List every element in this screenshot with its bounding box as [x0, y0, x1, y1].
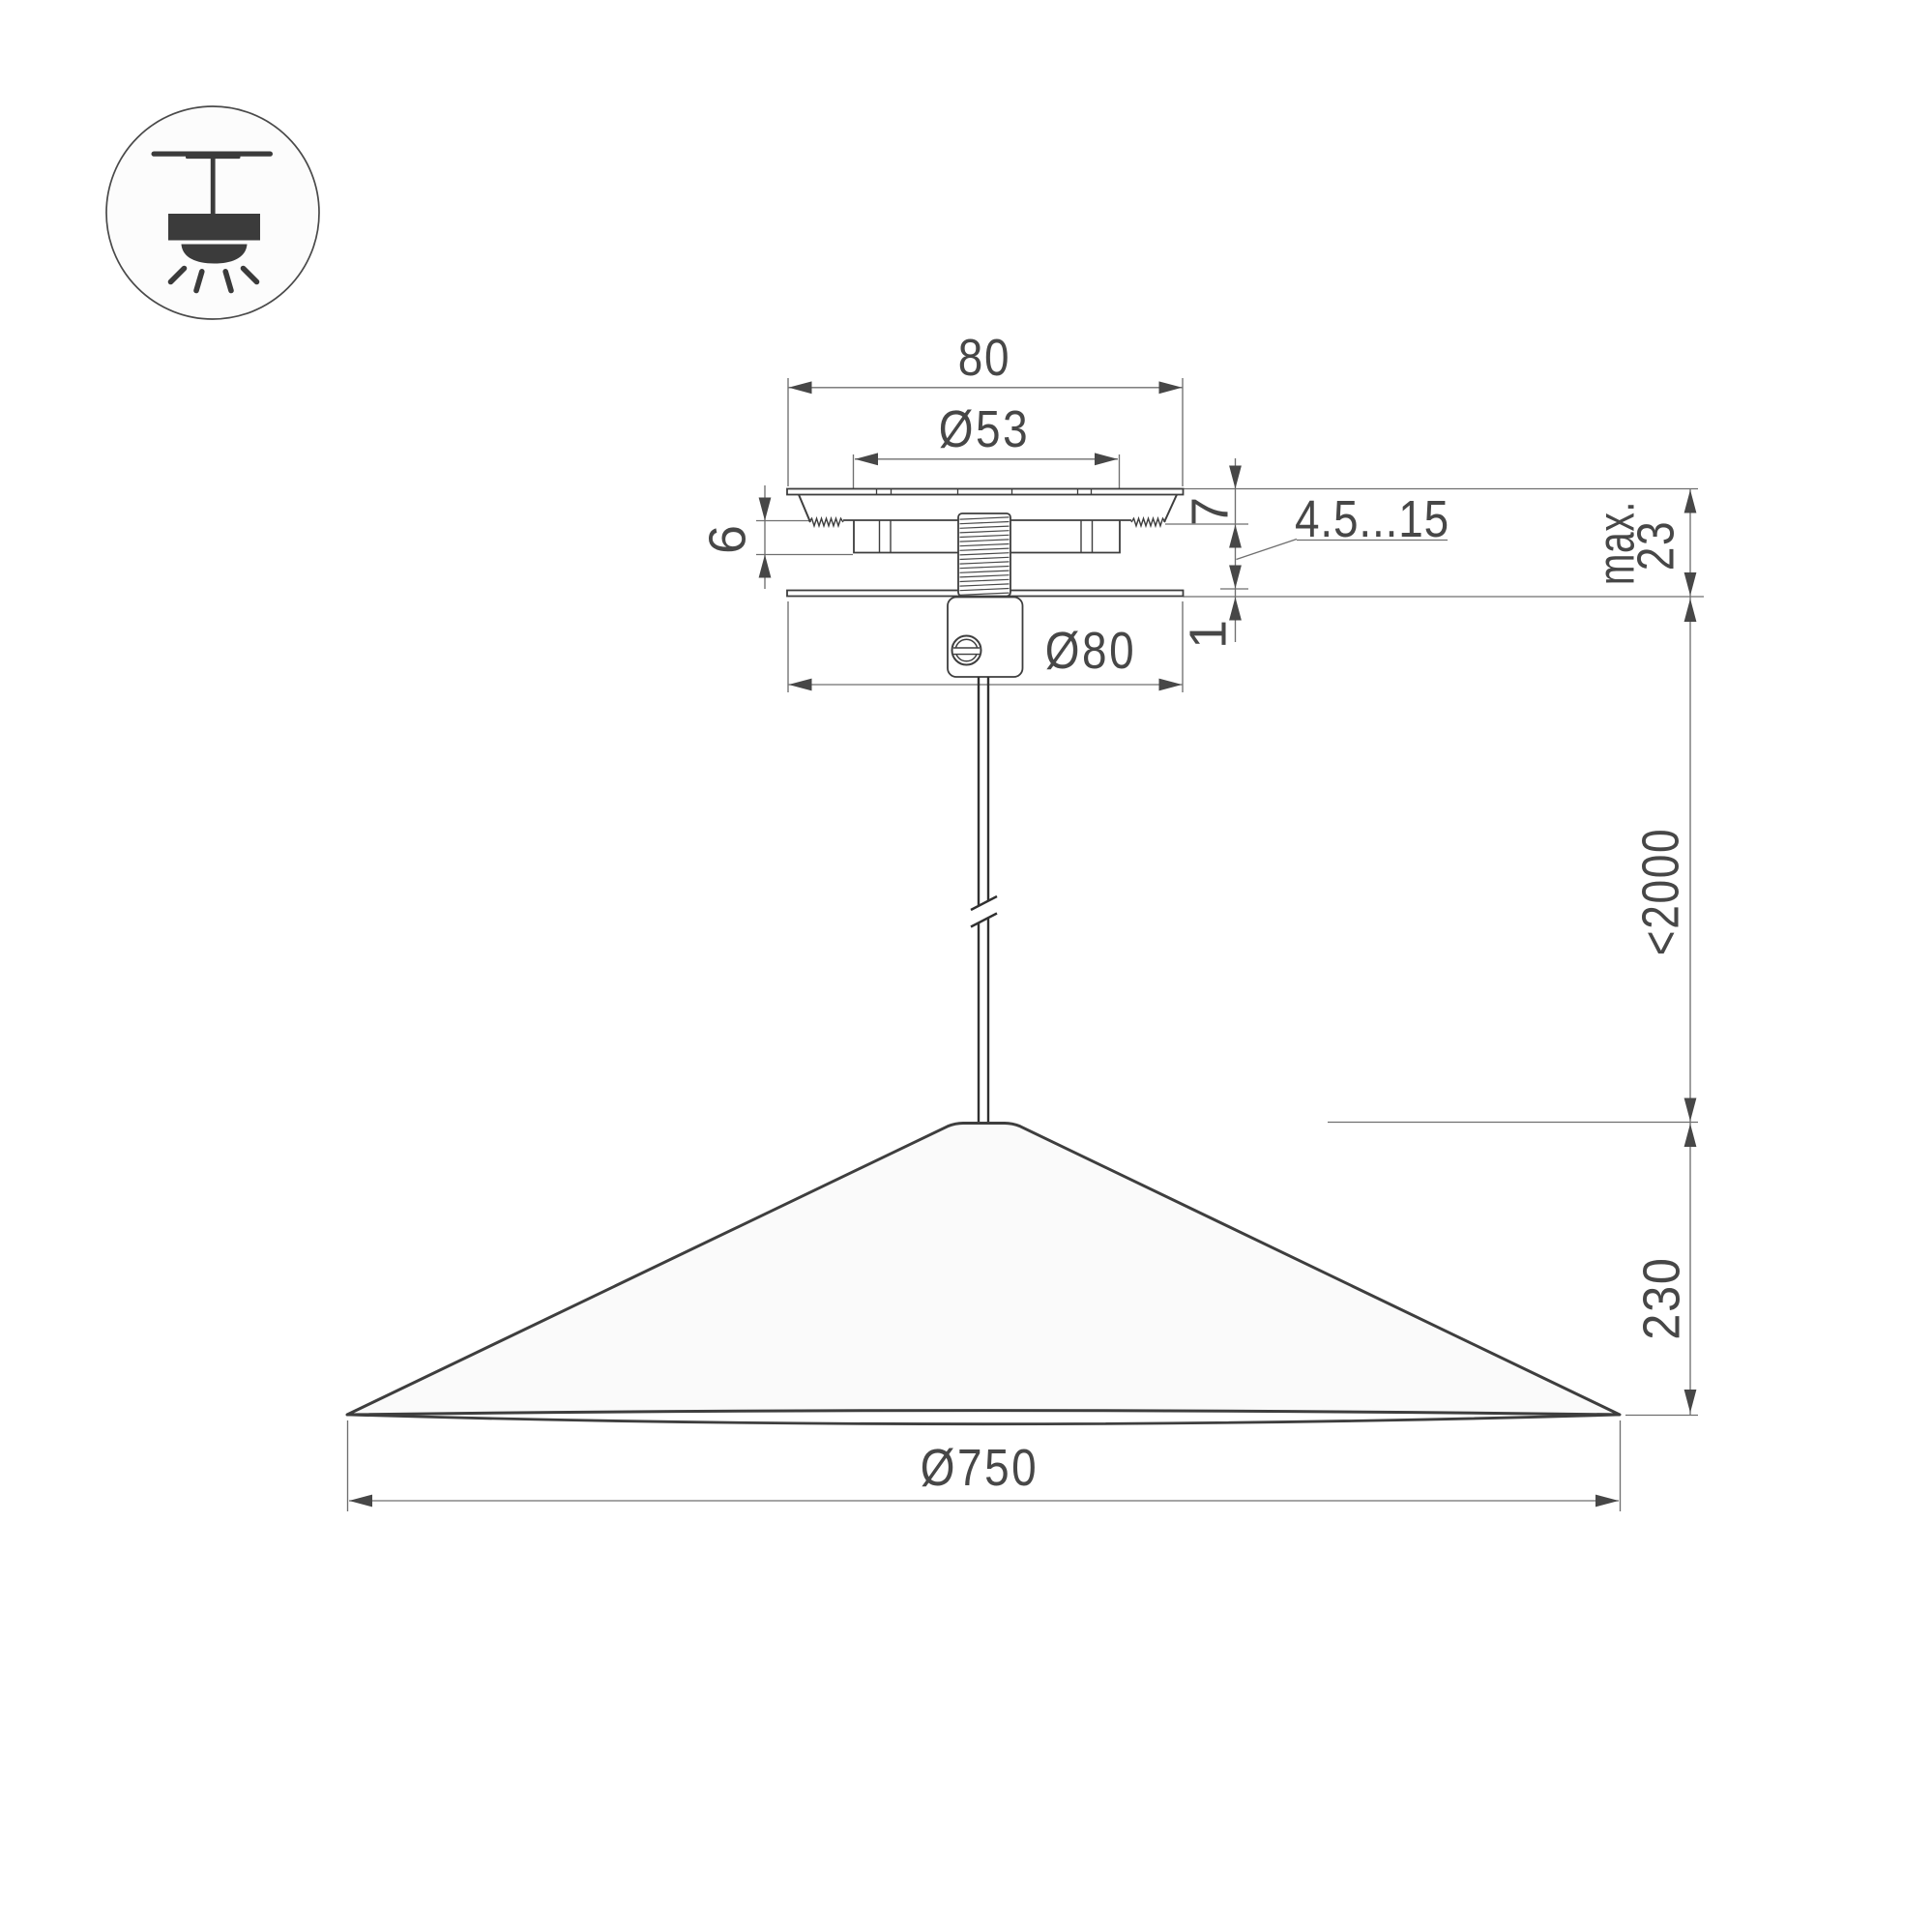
- svg-text:23: 23: [1626, 520, 1684, 571]
- svg-text:Ø53: Ø53: [939, 400, 1030, 458]
- svg-text:Ø80: Ø80: [1045, 622, 1136, 680]
- svg-text:4.5...15: 4.5...15: [1295, 490, 1449, 548]
- svg-text:230: 230: [1631, 1256, 1690, 1339]
- svg-text:80: 80: [958, 329, 1010, 387]
- svg-text:1: 1: [1180, 620, 1238, 649]
- svg-text:7: 7: [1182, 497, 1240, 526]
- svg-text:6: 6: [699, 525, 757, 554]
- svg-text:<2000: <2000: [1631, 828, 1689, 956]
- svg-text:Ø750: Ø750: [921, 1439, 1039, 1497]
